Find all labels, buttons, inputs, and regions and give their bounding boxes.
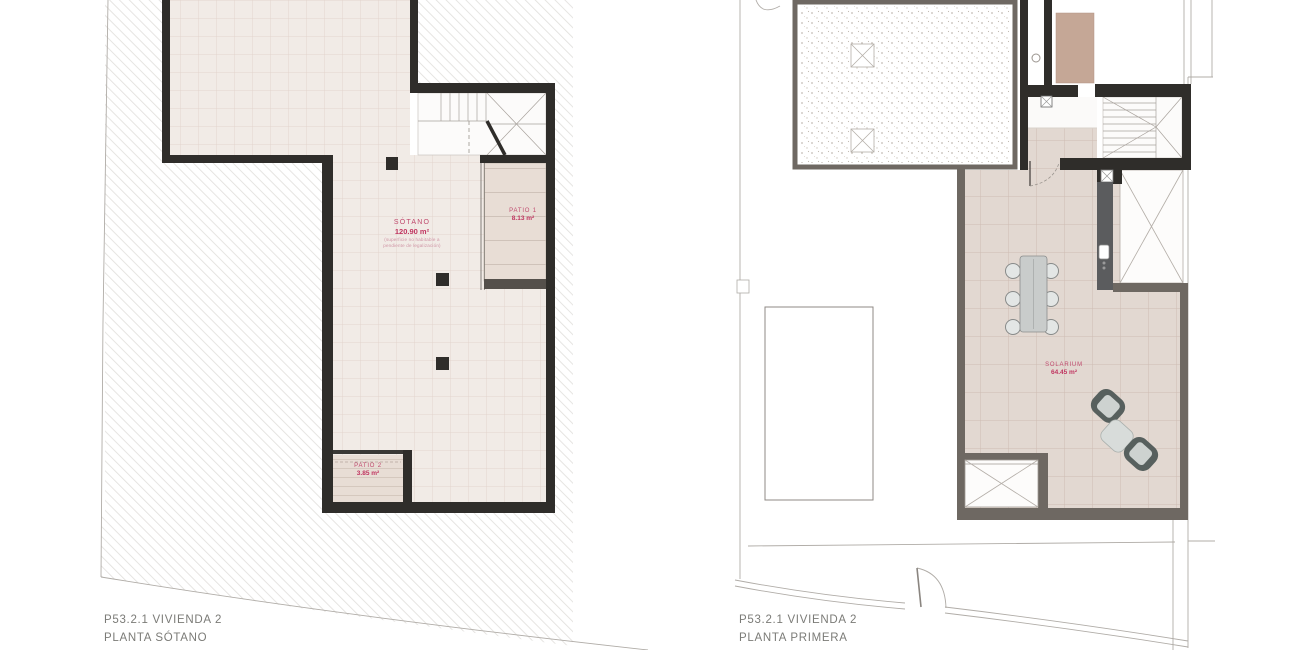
pool	[765, 307, 873, 500]
stairs-symbol-sotano	[418, 93, 546, 155]
floorplan-sheet: SÓTANO 120.90 m² (superficie no habitabl…	[0, 0, 1291, 650]
drainpipe	[1032, 54, 1040, 62]
footer-line: P53.2.1 VIVIENDA 2	[739, 611, 857, 629]
patio1-area	[481, 163, 546, 290]
gate-leaf	[917, 568, 921, 607]
pillar-vent	[1097, 168, 1122, 184]
outdoor-kitchen-counter	[1097, 182, 1113, 290]
floorplans-canvas	[0, 0, 1291, 650]
dining-set	[1006, 256, 1059, 335]
terrace-area	[795, 2, 1015, 167]
plan-footer-primera: P53.2.1 VIVIENDA 2 PLANTA PRIMERA	[739, 611, 857, 647]
plan-sotano-drawing	[101, 0, 648, 650]
plan-primera-drawing	[735, 0, 1215, 650]
footer-line: PLANTA SÓTANO	[104, 629, 222, 647]
boundary-post	[737, 280, 749, 293]
footer-line: P53.2.1 VIVIENDA 2	[104, 611, 222, 629]
stairs-symbol-primera	[1103, 97, 1182, 158]
wall-niche	[1041, 96, 1052, 107]
plan-footer-sotano: P53.2.1 VIVIENDA 2 PLANTA SÓTANO	[104, 611, 222, 647]
footer-line: PLANTA PRIMERA	[739, 629, 857, 647]
skylight-panel	[965, 460, 1038, 507]
void-skylight-x	[1120, 170, 1183, 283]
chimney-block	[1056, 13, 1094, 83]
